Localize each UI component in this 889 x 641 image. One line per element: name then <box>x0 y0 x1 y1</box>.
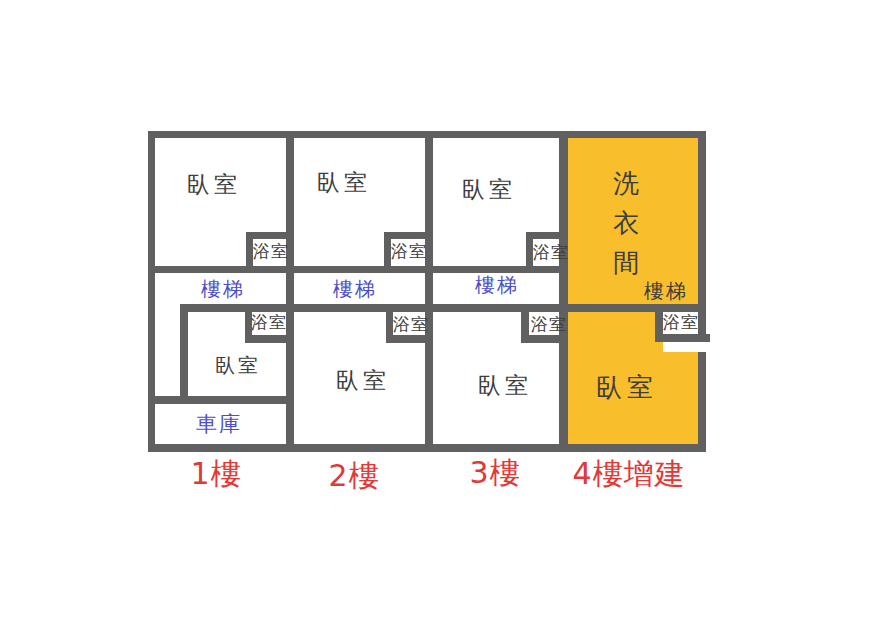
room-label-laundry-room: 洗衣間 <box>611 163 641 283</box>
room-label-bathroom-floor3-lower: 浴室 <box>531 316 567 333</box>
wall-floor3-upper-bath-top <box>526 232 567 239</box>
room-label-bedroom-floor1-upper: 臥室 <box>187 173 241 196</box>
wall-floor3-lower-bath-bottom <box>521 335 567 343</box>
room-label-bathroom-floor3-upper: 浴室 <box>533 244 569 261</box>
wall-floor2-lower-bath-bottom <box>386 335 433 343</box>
wall-floor1-upper-bath-top <box>246 232 294 239</box>
wall-floor2-upper-bath-top <box>384 232 433 239</box>
room-label-bathroom-floor4: 浴室 <box>663 314 699 331</box>
room-label-stairs-floor1: 樓梯 <box>201 279 245 299</box>
room-label-garage: 車庫 <box>196 414 242 435</box>
room-label-bathroom-floor2-upper: 浴室 <box>391 243 427 260</box>
room-label-bedroom-floor3-lower: 臥室 <box>478 374 532 397</box>
wall-floor1-garage-top <box>148 396 294 404</box>
floor-caption-4f-addition: 4樓增建 <box>572 459 685 489</box>
room-label-bedroom-floor2-upper: 臥室 <box>317 171 371 194</box>
room-label-stairs-floor3: 樓梯 <box>475 275 519 295</box>
room-label-bathroom-floor2-lower: 浴室 <box>393 316 429 333</box>
wall-floor1-lower-bath-bottom <box>245 335 294 343</box>
room-label-bedroom-floor4: 臥室 <box>596 374 658 400</box>
room-label-bedroom-floor2-lower: 臥室 <box>336 369 390 392</box>
floorplan: 臥室 臥室 臥室 臥室 臥室 臥室 臥室 浴室 浴室 浴室 浴室 浴室 浴室 浴… <box>0 0 889 641</box>
wall-stairband-top <box>148 266 559 273</box>
wall-floor4-bath-bottom <box>655 334 710 342</box>
wall-outer-right-lower <box>698 352 706 452</box>
floor-caption-2f: 2樓 <box>328 461 379 491</box>
wall-divider-floor3-floor4 <box>559 131 568 452</box>
room-label-bathroom-floor1-upper: 浴室 <box>253 243 289 260</box>
wall-floor1-bedroom-left <box>180 304 188 404</box>
room-label-bathroom-floor1-lower: 浴室 <box>251 314 287 331</box>
floor-caption-3f: 3樓 <box>469 458 520 488</box>
room-label-bedroom-floor3-upper: 臥室 <box>462 178 516 201</box>
room-label-stairs-floor4: 樓梯 <box>644 281 688 301</box>
room-label-bedroom-floor1-lower: 臥室 <box>215 355 261 375</box>
room-label-stairs-floor2: 樓梯 <box>333 279 377 299</box>
wall-divider-floor2-floor3 <box>425 131 433 452</box>
floor-caption-1f: 1樓 <box>190 459 241 489</box>
